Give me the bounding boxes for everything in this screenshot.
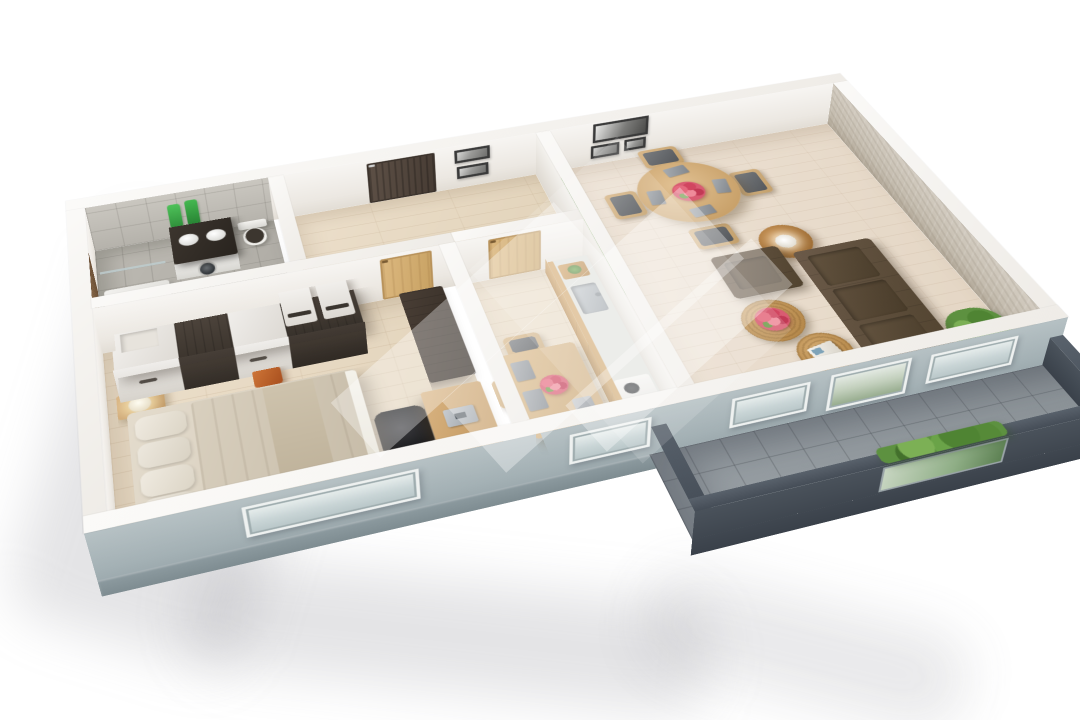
laptop [442,404,479,427]
entrance-door [366,153,436,204]
placemat [646,190,667,205]
hall-picture-frame [457,162,489,179]
sink-bowl [205,228,227,243]
placemat [662,165,690,178]
cutting-board-plant [557,261,591,280]
floor-plan-render: { "scene": { "title": "3D apartment floo… [0,0,1080,720]
apartment-plan [76,114,1055,581]
living-picture-frame-small [624,136,646,151]
dining-flowers [667,179,710,203]
sink-bowl [178,232,200,247]
toilet [237,218,272,249]
hall-picture-frame [454,145,490,164]
living-picture-frame-small [591,142,620,159]
placemat [689,204,718,218]
scene-3d [0,0,1080,720]
kitchen-sink [570,282,609,314]
placemat [711,178,731,193]
placemat [510,360,537,382]
